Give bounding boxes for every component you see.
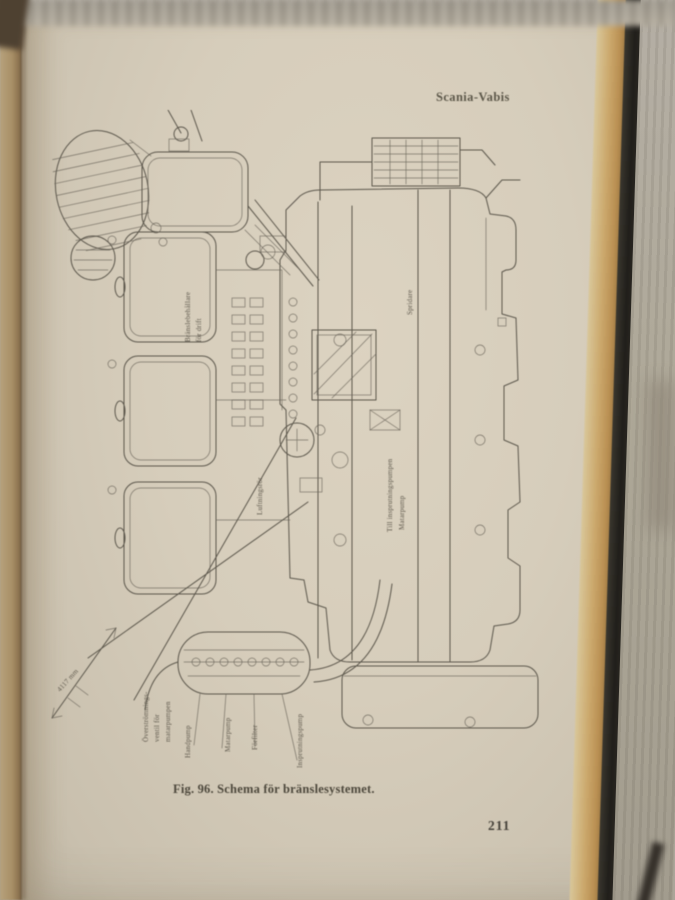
feed-pump-cylinder bbox=[145, 580, 392, 760]
oil-pan bbox=[342, 666, 538, 728]
diagram-label: för drift bbox=[195, 318, 203, 342]
diagram-label: Luftningsrör bbox=[256, 477, 264, 515]
top-page-edges bbox=[0, 0, 675, 26]
diagram-label: Matarpump bbox=[398, 495, 406, 530]
book-photograph: Scania-Vabis bbox=[0, 0, 675, 900]
diagram-label: Förfilter bbox=[251, 724, 259, 750]
diagram-label: Bränslebehållare bbox=[184, 292, 192, 342]
upper-tank bbox=[142, 152, 319, 286]
diagram-label: Handpump bbox=[184, 725, 192, 758]
dimension-arrow bbox=[52, 628, 116, 718]
diagram-label: Spridare bbox=[406, 290, 414, 315]
diagram-label: ventil för bbox=[153, 714, 161, 742]
fabric-shadow bbox=[648, 380, 674, 530]
diagram-label: Överströmnings- bbox=[142, 691, 150, 742]
feed-lines-top bbox=[130, 110, 202, 156]
diagram-label: Insprutningspump bbox=[296, 714, 304, 768]
pipe-runs bbox=[318, 190, 450, 662]
page-number: 211 bbox=[488, 818, 511, 834]
dimension-label: 4117 mm bbox=[56, 667, 81, 693]
diagram-label: matarpumpen bbox=[164, 701, 172, 742]
injection-cluster bbox=[232, 225, 506, 546]
diagram-label: Matarpump bbox=[224, 717, 232, 752]
diagram-label: Till insprutningspumpen bbox=[386, 458, 394, 532]
fuel-tanks bbox=[108, 232, 290, 594]
cooler-block bbox=[320, 138, 495, 200]
running-head: Scania-Vabis bbox=[436, 90, 546, 105]
fuel-system-diagram: Bränslebehållare för drift Luftningsrör … bbox=[50, 110, 550, 770]
figure-caption: Fig. 96. Schema för bränslesystemet. bbox=[173, 782, 433, 797]
